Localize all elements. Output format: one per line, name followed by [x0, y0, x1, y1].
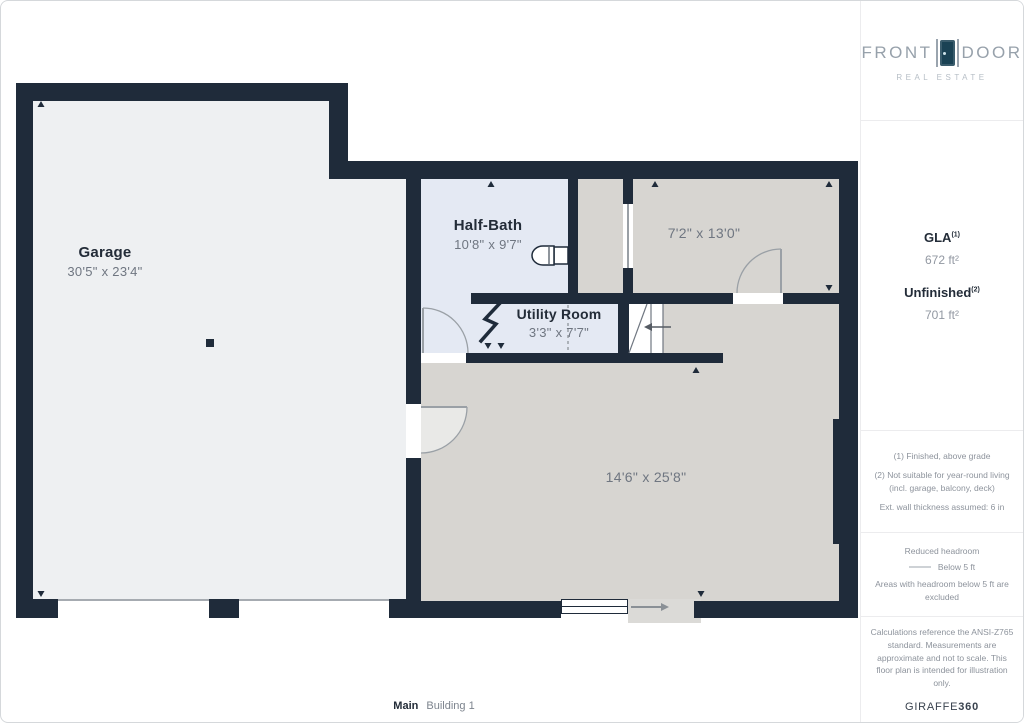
wall-segment [839, 161, 858, 618]
wall-segment [16, 83, 348, 101]
floorplan-page: Garage 30'5" x 23'4" Half-Bath 10'8" x 9… [0, 0, 1024, 723]
wall-segment [406, 179, 421, 404]
wall-segment [406, 458, 421, 618]
info-sidebar: FRONT DOOR REAL ESTATE GLA(1) 672 ft² Un… [860, 1, 1023, 722]
gla-footnote-marker: (1) [951, 231, 960, 238]
wall-segment [16, 599, 58, 618]
footnotes: (1) Finished, above grade (2) Not suitab… [861, 431, 1023, 533]
headroom-line-icon [909, 566, 931, 568]
room-dimensions: 14'6" x 25'8" [606, 469, 687, 485]
wall-segment [783, 293, 839, 304]
wall-segment [329, 161, 858, 179]
room-name: Garage [67, 244, 142, 261]
wall-segment [618, 304, 629, 353]
room-label-7x13: 7'2" x 13'0" [668, 222, 741, 241]
wall-segment [833, 419, 839, 544]
room-garage-floor [331, 179, 406, 599]
floor-level-label: Main [393, 700, 418, 712]
brand-logo: FRONT DOOR REAL ESTATE [861, 1, 1023, 121]
room-label-utility: Utility Room 3'3" x 7'7" [517, 306, 602, 340]
entry-pad [628, 599, 701, 623]
door-knob-icon [943, 52, 946, 55]
legend-title: Reduced headroom [905, 546, 980, 556]
room-dimensions: 10'8" x 9'7" [454, 237, 522, 252]
corridor-floor [578, 179, 623, 293]
unfinished-label: Unfinished(2) [904, 285, 980, 300]
disclaimer-text: Calculations reference the ANSI-Z765 sta… [870, 626, 1014, 690]
wall-segment [471, 293, 733, 304]
giraffe360-logo: GIRAFFE360 [905, 701, 979, 713]
footnote-wall-thickness: Ext. wall thickness assumed: 6 in [880, 501, 1005, 513]
floor-caption: Main Building 1 [393, 700, 474, 712]
wall-segment [421, 601, 561, 618]
room-dimensions: 3'3" x 7'7" [517, 325, 602, 340]
room-dimensions: 30'5" x 23'4" [67, 264, 142, 279]
legend: Reduced headroom Below 5 ft Areas with h… [861, 533, 1023, 617]
wall-segment [623, 179, 633, 204]
wall-segment [694, 601, 858, 618]
room-label-main: 14'6" x 25'8" [606, 466, 687, 485]
room-dimensions: 7'2" x 13'0" [668, 225, 741, 241]
floorplan-drawing: Garage 30'5" x 23'4" Half-Bath 10'8" x 9… [15, 81, 858, 621]
wall-segment [568, 179, 578, 294]
door-icon [940, 40, 955, 66]
sidebar-footer: Calculations reference the ANSI-Z765 sta… [861, 617, 1023, 722]
room-name: Utility Room [517, 306, 602, 322]
sliding-door-panel [561, 599, 628, 614]
wall-segment [209, 599, 239, 618]
footnote-2: (2) Not suitable for year-round living (… [869, 469, 1015, 494]
staircase-floor [629, 304, 663, 353]
wall-segment [623, 268, 633, 293]
brand-name-front: FRONT [861, 43, 932, 63]
brand-tagline: REAL ESTATE [896, 73, 987, 82]
room-main-floor [723, 304, 839, 363]
gla-value: 672 ft² [925, 253, 959, 267]
brand-name-door: DOOR [962, 43, 1023, 63]
room-label-halfbath: Half-Bath 10'8" x 9'7" [454, 217, 522, 252]
gla-label: GLA(1) [924, 230, 960, 245]
unfinished-value: 701 ft² [925, 308, 959, 322]
building-label: Building 1 [426, 700, 474, 712]
room-garage-floor [33, 101, 331, 599]
legend-item: Below 5 ft [938, 562, 975, 572]
area-stats: GLA(1) 672 ft² Unfinished(2) 701 ft² [861, 121, 1023, 431]
wall-segment [329, 99, 348, 161]
room-name: Half-Bath [454, 217, 522, 234]
legend-note: Areas with headroom below 5 ft are exclu… [871, 578, 1013, 603]
room-label-garage: Garage 30'5" x 23'4" [67, 244, 142, 279]
wall-segment [466, 353, 723, 363]
unfinished-footnote-marker: (2) [971, 286, 980, 293]
wall-segment [16, 83, 33, 618]
footnote-1: (1) Finished, above grade [894, 450, 991, 462]
